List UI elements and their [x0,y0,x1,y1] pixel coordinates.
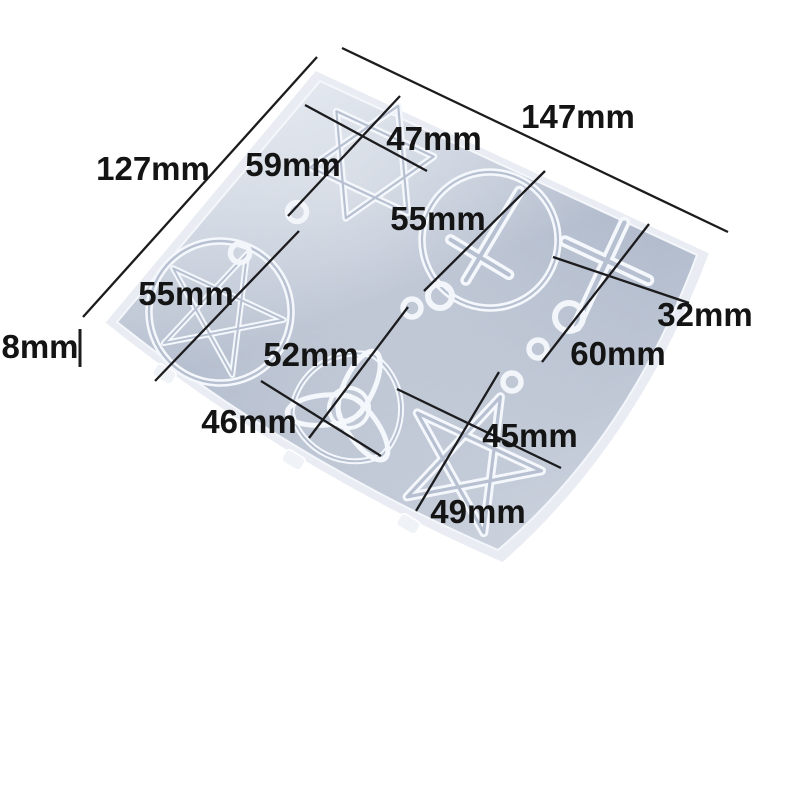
dim-label-plate-width: 147mm [521,98,635,135]
dim-label-pentacle-diameter: 55mm [138,275,233,312]
dim-label-knot-b: 46mm [201,403,296,440]
dim-label-knot-a: 52mm [263,336,358,373]
dim-label-hexagram-a: 47mm [386,120,481,157]
dim-label-plate-height: 127mm [96,150,210,187]
dim-label-star-a: 45mm [482,417,577,454]
dim-label-cross-width: 32mm [657,296,752,333]
mold-photo: 147mm 127mm 8mm 47mm 59mm 55mm 55mm 32mm… [0,0,800,800]
dim-label-cross-height: 60mm [570,335,665,372]
dim-label-circle-diameter: 55mm [390,200,485,237]
dim-label-plate-thickness: 8mm [1,328,78,365]
product-photo-canvas: 147mm 127mm 8mm 47mm 59mm 55mm 55mm 32mm… [0,0,800,800]
dim-label-star-b: 49mm [430,493,525,530]
dim-label-hexagram-b: 59mm [245,146,340,183]
